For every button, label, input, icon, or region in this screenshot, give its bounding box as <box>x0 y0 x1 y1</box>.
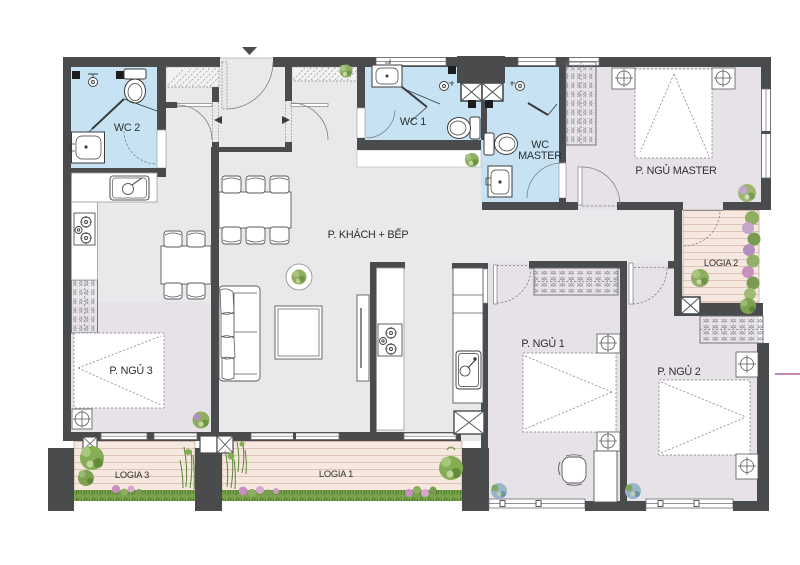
svg-text:MASTER: MASTER <box>518 150 562 162</box>
svg-text:WC 1: WC 1 <box>400 116 426 128</box>
svg-text:P. KHÁCH + BẾP: P. KHÁCH + BẾP <box>328 228 409 241</box>
svg-text:P. NGỦ MASTER: P. NGỦ MASTER <box>635 164 717 177</box>
svg-text:WC 2: WC 2 <box>114 122 140 134</box>
svg-text:LOGIA 2: LOGIA 2 <box>704 258 738 268</box>
svg-text:P. NGỦ 2: P. NGỦ 2 <box>657 365 700 378</box>
svg-text:LOGIA 1: LOGIA 1 <box>319 469 353 479</box>
svg-text:LOGIA 3: LOGIA 3 <box>115 470 149 480</box>
svg-text:P. NGỦ 3: P. NGỦ 3 <box>109 364 152 377</box>
svg-text:P. NGỦ 1: P. NGỦ 1 <box>521 337 564 350</box>
